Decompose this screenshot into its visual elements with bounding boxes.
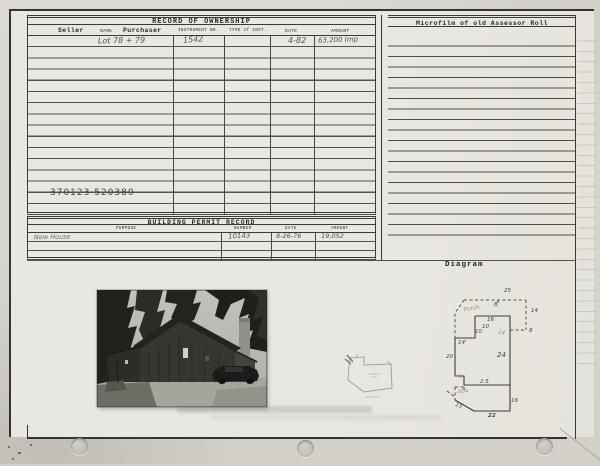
dim-notch-b: 10 <box>475 329 482 335</box>
dim-inner-faint: 14 <box>498 330 506 337</box>
dim-area: 24 <box>497 351 506 359</box>
col-purpose: PURPOSE <box>116 227 136 231</box>
property-photo <box>97 290 267 407</box>
punch-hole <box>536 438 553 455</box>
dim-scribble: 20/4 <box>457 389 468 395</box>
ghost-text-artifact <box>211 415 441 420</box>
house-photo-illustration <box>97 290 267 407</box>
permit-title: BUILDING PERMIT RECORD <box>28 216 375 225</box>
card-bottom-edge <box>27 437 567 439</box>
punch-hole <box>71 438 88 455</box>
dim-step-tick: 8 <box>459 374 463 380</box>
dim-left-mid: 20 <box>446 354 453 360</box>
permit-rows: New House 10143 8-26-76 19,052 <box>28 233 375 260</box>
col-name: NAME <box>100 29 112 34</box>
entry-lot: Lot 78 + 79 <box>98 36 145 46</box>
card-inner-divider <box>381 15 382 260</box>
ghost-text-artifact <box>177 406 372 413</box>
parcel-numbers: 370123 520380 <box>50 188 135 198</box>
scanned-assessor-card: RECORD OF OWNERSHIP Seller NAME Purchase… <box>0 0 600 464</box>
dim-upper-width: 16 <box>487 317 494 323</box>
col-number: NUMBER <box>234 227 251 231</box>
entry-date: 4-82 <box>288 36 306 45</box>
diagram-section-label: Diagram <box>445 261 484 269</box>
dim-notch-a: 10 <box>482 324 489 330</box>
ownership-table: RECORD OF OWNERSHIP Seller NAME Purchase… <box>27 15 376 215</box>
col-date: DATE <box>285 227 297 231</box>
column-divider <box>315 233 316 260</box>
entry-amount: 63,200 Imp <box>318 35 358 44</box>
ruled-line-ghost-artifact <box>577 31 596 371</box>
record-card: RECORD OF OWNERSHIP Seller NAME Purchase… <box>9 9 594 437</box>
ownership-rows: Lot 78 + 79 1542 4-82 63,200 Imp 370123 … <box>28 36 375 215</box>
col-seller: Seller <box>58 27 84 34</box>
dim-top-width: 25 <box>504 288 511 294</box>
col-type: TYPE of INST. <box>229 29 267 33</box>
scan-speck <box>8 446 10 448</box>
dim-top-tick: 8 <box>494 302 498 308</box>
card-right-edge <box>575 15 576 439</box>
col-date: DATE <box>285 29 297 34</box>
dim-right-ext: 8 <box>529 328 533 334</box>
entry-amount: 19,052 <box>321 232 344 240</box>
dim-step: 2.5 <box>480 379 489 385</box>
col-instrument: INSTRUMENT NR. <box>178 29 219 33</box>
col-amount: AMOUNT <box>331 29 350 34</box>
column-divider <box>314 36 315 215</box>
dim-right-upper: 14 <box>531 308 538 314</box>
ownership-title: RECORD OF OWNERSHIP <box>28 15 375 25</box>
dim-left-upper: 14' <box>458 340 467 346</box>
punch-hole <box>297 440 314 457</box>
plot-sketch-small <box>327 347 407 405</box>
plot-sketch-small-drawing <box>327 347 407 405</box>
entry-purpose: New House <box>34 233 71 242</box>
column-divider <box>173 36 174 215</box>
col-purchaser: Purchaser <box>123 27 162 34</box>
microfilm-title: Microfilm of old Assessor Roll <box>388 15 576 27</box>
microfilm-panel: Microfilm of old Assessor Roll <box>388 15 576 247</box>
dim-right-lower: 16 <box>511 398 518 404</box>
permit-table: BUILDING PERMIT RECORD PURPOSE NUMBER DA… <box>27 216 376 260</box>
scan-speck <box>30 444 32 446</box>
microfilm-ruled-lines <box>388 36 576 239</box>
building-outline-diagram: 25 8 Porch 14 16 10 10 14 14' 8 20 24 8 … <box>442 287 554 435</box>
column-divider <box>271 233 272 260</box>
entry-number: 10143 <box>228 231 251 240</box>
scan-speck <box>12 458 14 460</box>
column-divider <box>270 36 271 215</box>
scan-speck <box>18 452 21 454</box>
col-amount: AMOUNT <box>331 227 348 231</box>
dim-bottom: 22 <box>488 413 496 419</box>
entry-instrument: 1542 <box>183 34 204 44</box>
entry-date: 8-26-76 <box>276 232 301 240</box>
column-divider <box>221 233 222 260</box>
card-bottom-step <box>27 425 28 437</box>
section-separator <box>27 260 576 261</box>
column-divider <box>224 36 225 215</box>
